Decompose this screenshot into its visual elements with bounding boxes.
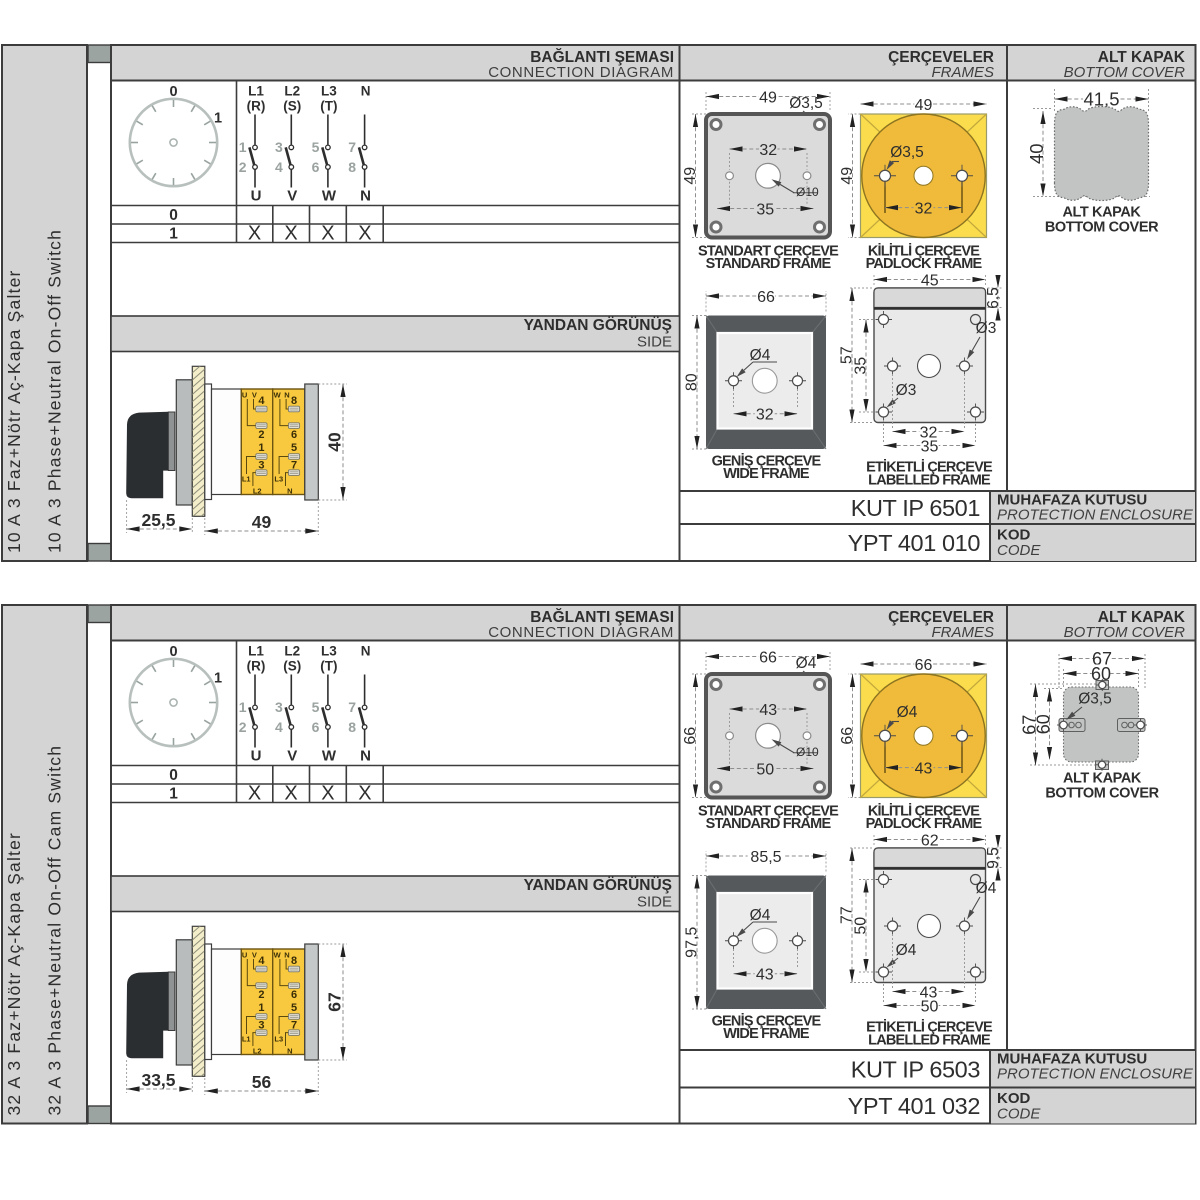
svg-text:10 A 3 Faz+Nötr Aç-Kapa Şalter: 10 A 3 Faz+Nötr Aç-Kapa Şalter [4,269,24,553]
svg-text:50: 50 [852,917,869,935]
svg-text:FRAMES: FRAMES [931,64,994,81]
svg-text:X: X [358,783,371,805]
svg-text:V: V [287,188,297,205]
svg-text:Ø3,5: Ø3,5 [789,95,823,112]
svg-text:80: 80 [683,373,700,391]
svg-text:FRAMES: FRAMES [931,624,994,641]
svg-text:32 A 3 Faz+Nötr Aç-Kapa Şalter: 32 A 3 Faz+Nötr Aç-Kapa Şalter [4,832,24,1116]
svg-text:X: X [248,223,261,245]
svg-text:KUT IP 6503: KUT IP 6503 [851,1056,981,1082]
svg-text:ALT KAPAK: ALT KAPAK [1062,205,1141,221]
svg-text:CONNECTION DIAGRAM: CONNECTION DIAGRAM [488,624,674,641]
svg-text:66: 66 [759,649,777,666]
svg-text:BOTTOM COVER: BOTTOM COVER [1064,624,1186,641]
svg-text:W: W [322,748,337,765]
svg-text:SIDE: SIDE [637,894,672,911]
svg-text:L3: L3 [321,644,337,659]
svg-text:L2: L2 [253,486,262,495]
svg-text:0: 0 [169,84,177,100]
svg-text:Ø4: Ø4 [796,655,817,672]
svg-text:Ø10: Ø10 [796,745,819,759]
svg-text:(T): (T) [320,659,337,674]
svg-text:32 A 3 Phase+Neutral On-Off Ca: 32 A 3 Phase+Neutral On-Off Cam Switch [45,745,65,1116]
svg-text:66: 66 [915,657,933,674]
svg-text:Ø4: Ø4 [750,347,771,364]
svg-text:YPT 401 010: YPT 401 010 [848,530,981,556]
svg-text:62: 62 [921,832,939,849]
svg-text:10 A 3 Phase+Neutral On-Off Sw: 10 A 3 Phase+Neutral On-Off Switch [45,229,65,553]
svg-text:32: 32 [759,142,777,159]
svg-text:L1: L1 [242,474,251,483]
svg-text:66: 66 [682,727,699,745]
svg-text:PADLOCK FRAME: PADLOCK FRAME [866,256,983,272]
svg-text:(T): (T) [320,99,337,114]
svg-text:(S): (S) [283,659,301,674]
svg-text:X: X [358,223,371,245]
svg-text:U: U [242,390,247,399]
svg-text:67: 67 [324,992,344,1011]
svg-text:L2: L2 [284,84,300,99]
svg-text:YPT 401 032: YPT 401 032 [848,1093,980,1119]
svg-text:U: U [242,950,247,959]
svg-text:49: 49 [252,512,272,532]
svg-text:X: X [248,783,261,805]
svg-text:40: 40 [324,432,344,452]
svg-text:X: X [321,783,334,805]
svg-text:56: 56 [252,1072,272,1092]
svg-text:1: 1 [258,1002,264,1014]
svg-text:N: N [361,644,371,659]
svg-text:CONNECTION DIAGRAM: CONNECTION DIAGRAM [488,64,674,81]
svg-text:PROTECTION ENCLOSURE: PROTECTION ENCLOSURE [997,507,1194,524]
svg-text:32: 32 [756,407,774,424]
svg-text:X: X [284,783,297,805]
svg-text:1: 1 [169,786,178,803]
svg-text:W: W [274,390,282,399]
svg-text:3: 3 [258,1019,264,1031]
svg-text:7: 7 [291,1019,297,1031]
svg-text:60: 60 [1033,714,1053,734]
svg-text:6: 6 [291,989,297,1001]
svg-text:0: 0 [169,767,178,784]
svg-text:43: 43 [759,702,777,719]
svg-text:Ø4: Ø4 [750,907,771,924]
svg-text:Ø4: Ø4 [896,942,917,959]
svg-text:35: 35 [756,201,774,218]
svg-text:W: W [322,188,337,205]
svg-text:V: V [252,950,257,959]
svg-text:85,5: 85,5 [750,849,781,866]
svg-text:43: 43 [756,967,774,984]
svg-text:43: 43 [915,760,933,777]
svg-text:YANDAN GÖRÜNÜŞ: YANDAN GÖRÜNÜŞ [524,317,672,334]
svg-text:L1: L1 [248,644,264,659]
svg-text:5: 5 [312,699,320,715]
svg-text:4: 4 [275,159,283,175]
svg-text:BOTTOM COVER: BOTTOM COVER [1064,64,1186,81]
svg-text:5: 5 [291,442,297,454]
svg-text:U: U [251,748,262,765]
svg-text:2: 2 [239,719,247,735]
svg-text:YANDAN GÖRÜNÜŞ: YANDAN GÖRÜNÜŞ [524,877,672,894]
svg-text:L2: L2 [284,644,300,659]
svg-text:66: 66 [839,727,856,745]
svg-text:(S): (S) [283,99,301,114]
svg-text:50: 50 [756,761,774,778]
svg-text:6: 6 [291,429,297,441]
svg-text:N: N [284,950,289,959]
svg-text:PADLOCK FRAME: PADLOCK FRAME [866,816,983,832]
svg-text:(R): (R) [247,659,266,674]
svg-text:2: 2 [258,989,264,1001]
svg-text:L3: L3 [274,474,283,483]
svg-text:3: 3 [275,139,283,155]
svg-text:40: 40 [1026,143,1047,164]
svg-text:Ø3: Ø3 [896,382,917,399]
svg-text:8: 8 [291,395,297,407]
svg-text:9,5: 9,5 [985,847,1002,869]
svg-text:49: 49 [915,97,933,114]
svg-text:49: 49 [839,167,856,185]
svg-text:49: 49 [759,89,777,106]
svg-text:2: 2 [239,159,247,175]
svg-text:5: 5 [291,1002,297,1014]
svg-text:W: W [274,950,282,959]
svg-text:8: 8 [291,955,297,967]
svg-text:L2: L2 [253,1046,262,1055]
svg-text:L1: L1 [242,1034,251,1043]
svg-text:7: 7 [291,459,297,471]
svg-text:8: 8 [348,719,356,735]
svg-text:X: X [321,223,334,245]
svg-text:66: 66 [757,289,775,306]
svg-text:V: V [252,390,257,399]
svg-text:L1: L1 [248,84,264,99]
svg-text:Ø10: Ø10 [796,185,819,199]
svg-text:7: 7 [348,699,356,715]
svg-text:WIDE FRAME: WIDE FRAME [723,466,810,482]
svg-text:4: 4 [258,955,265,967]
svg-text:Ø4: Ø4 [976,880,997,897]
svg-text:50: 50 [921,998,939,1015]
svg-text:49: 49 [682,167,699,185]
svg-text:N: N [284,390,289,399]
svg-text:6: 6 [312,719,320,735]
svg-text:(R): (R) [247,99,266,114]
svg-text:CODE: CODE [997,1106,1041,1123]
svg-text:N: N [361,84,371,99]
svg-text:3: 3 [258,459,264,471]
svg-text:Ø3,5: Ø3,5 [1078,691,1112,708]
svg-text:2: 2 [258,429,264,441]
svg-text:35: 35 [921,438,939,455]
svg-text:4: 4 [258,395,265,407]
svg-text:1: 1 [214,111,222,127]
svg-text:5: 5 [312,139,320,155]
svg-text:45: 45 [921,272,939,289]
svg-text:7: 7 [348,139,356,155]
svg-text:1: 1 [214,671,222,687]
svg-text:N: N [287,486,292,495]
svg-text:CODE: CODE [997,542,1041,559]
svg-text:1: 1 [239,699,247,715]
svg-text:STANDARD FRAME: STANDARD FRAME [706,816,832,832]
svg-text:33,5: 33,5 [141,1070,175,1090]
svg-text:BOTTOM COVER: BOTTOM COVER [1045,786,1159,802]
svg-text:N: N [360,188,371,205]
svg-text:35: 35 [852,357,869,375]
svg-text:L3: L3 [321,84,337,99]
svg-text:4: 4 [275,719,283,735]
svg-text:V: V [287,748,297,765]
svg-text:X: X [284,223,297,245]
svg-text:KOD: KOD [997,1090,1031,1107]
svg-text:ALT KAPAK: ALT KAPAK [1063,771,1142,787]
svg-text:N: N [360,748,371,765]
svg-text:LABELLED FRAME: LABELLED FRAME [868,1033,991,1049]
svg-text:0: 0 [169,644,177,660]
svg-text:Ø3,5: Ø3,5 [890,144,924,161]
svg-text:0: 0 [169,207,178,224]
svg-text:BOTTOM COVER: BOTTOM COVER [1045,220,1159,236]
svg-text:LABELLED FRAME: LABELLED FRAME [868,473,991,489]
svg-text:97,5: 97,5 [683,927,700,958]
svg-text:KOD: KOD [997,527,1031,544]
svg-text:6,5: 6,5 [985,287,1002,309]
svg-text:N: N [287,1046,292,1055]
svg-text:SIDE: SIDE [637,334,672,351]
svg-text:8: 8 [348,159,356,175]
svg-text:Ø4: Ø4 [897,704,918,721]
svg-text:KUT IP 6501: KUT IP 6501 [851,495,980,521]
svg-text:3: 3 [275,699,283,715]
svg-text:WIDE FRAME: WIDE FRAME [723,1026,810,1042]
svg-text:1: 1 [258,442,264,454]
svg-text:32: 32 [915,200,933,217]
svg-text:STANDARD FRAME: STANDARD FRAME [706,256,832,272]
svg-text:1: 1 [169,226,178,243]
svg-text:L3: L3 [274,1034,283,1043]
svg-text:PROTECTION ENCLOSURE: PROTECTION ENCLOSURE [997,1066,1194,1083]
svg-text:6: 6 [312,159,320,175]
svg-text:1: 1 [239,139,247,155]
svg-text:U: U [251,188,262,205]
svg-text:25,5: 25,5 [141,510,175,530]
svg-text:Ø3: Ø3 [976,320,997,337]
